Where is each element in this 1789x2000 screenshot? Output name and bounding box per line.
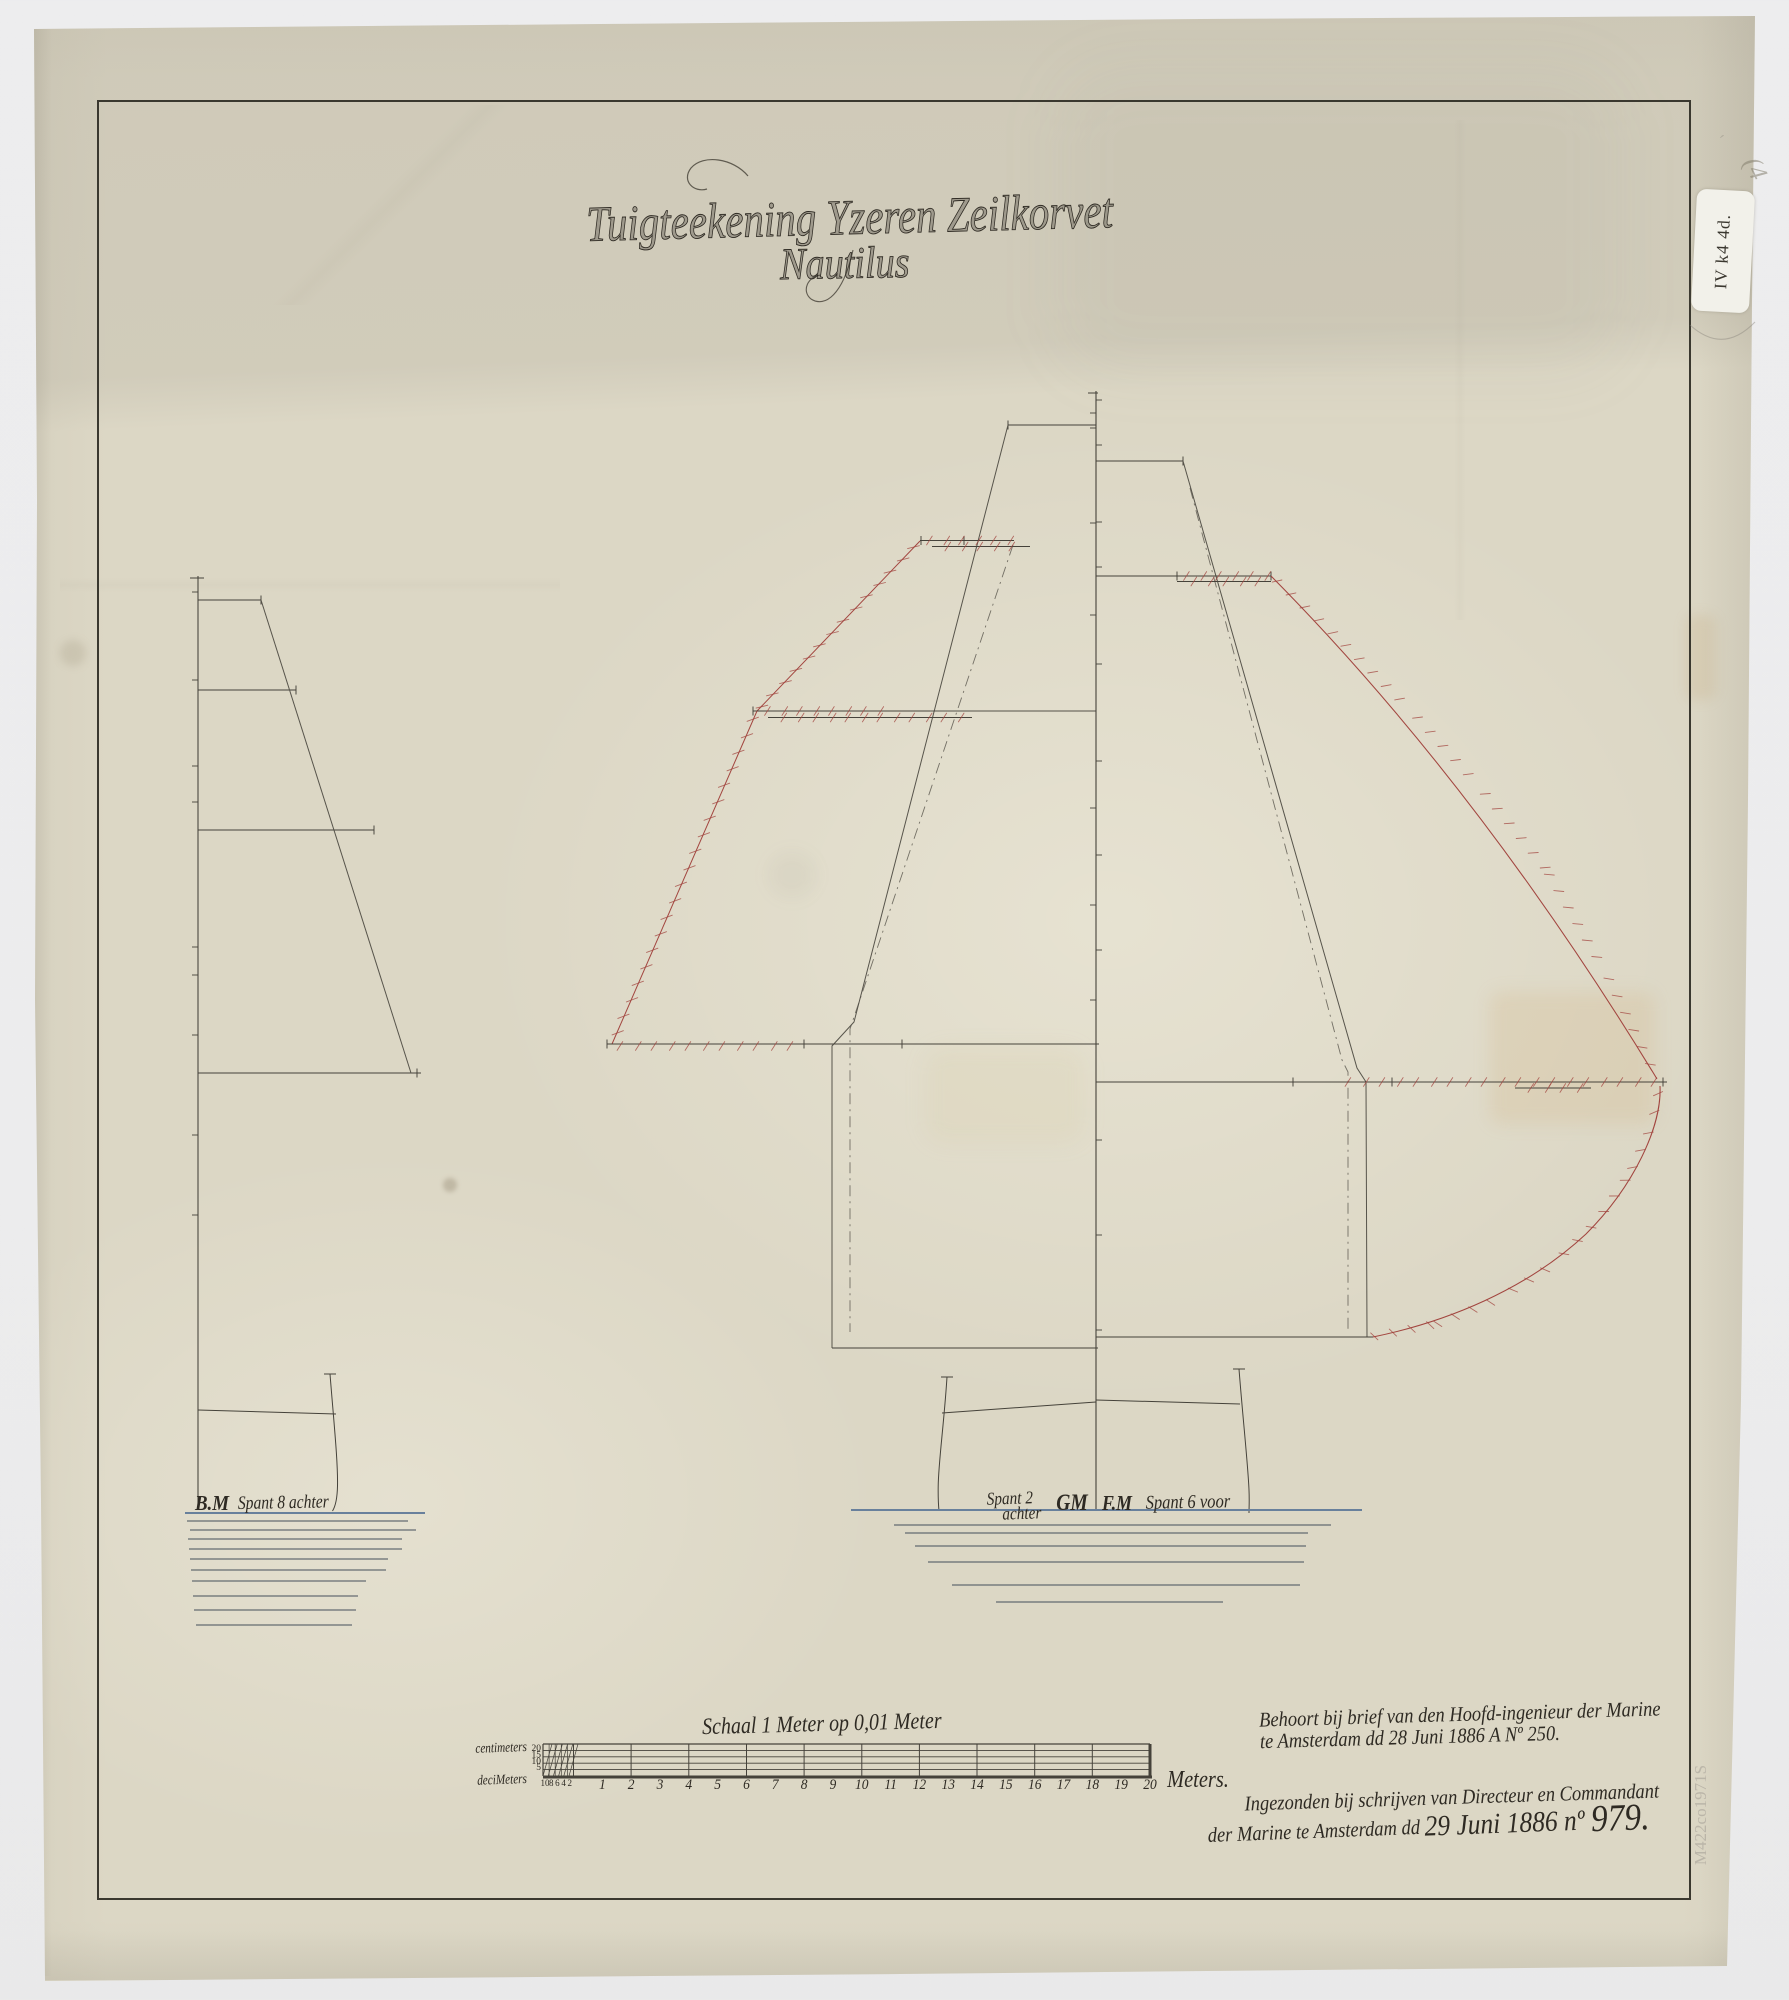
svg-text:2: 2 [568,1778,573,1788]
svg-text:14: 14 [970,1776,983,1793]
svg-text:11: 11 [884,1776,896,1793]
svg-text:10: 10 [855,1776,868,1793]
svg-text:13: 13 [941,1776,954,1793]
svg-text:Spant 8 achter: Spant 8 achter [238,1491,329,1513]
svg-text:5: 5 [536,1763,541,1773]
svg-text:M422co1971S: M422co1971S [1691,1765,1710,1865]
svg-text:18: 18 [1086,1776,1099,1793]
svg-text:deciMeters: deciMeters [477,1771,527,1788]
svg-text:8: 8 [549,1778,554,1788]
svg-text:6: 6 [743,1776,751,1793]
svg-text:achter: achter [1002,1502,1042,1524]
svg-text:(4: (4 [1738,152,1773,184]
svg-text:Meters.: Meters. [1166,1765,1229,1792]
svg-text:9: 9 [830,1776,837,1793]
svg-text:Spant 6 voor: Spant 6 voor [1145,1490,1231,1513]
svg-text:centimeters: centimeters [475,1739,527,1756]
svg-text:Schaal 1 Meter op 0,01 Meter: Schaal 1 Meter op 0,01 Meter [702,1707,943,1739]
svg-text:20: 20 [1143,1776,1156,1793]
svg-text:7: 7 [772,1776,780,1793]
svg-text:17: 17 [1057,1776,1071,1793]
svg-text:GM: GM [1056,1490,1088,1516]
svg-text:8: 8 [801,1776,808,1793]
svg-text:ˊ: ˊ [1719,132,1725,152]
svg-text:19: 19 [1114,1776,1127,1793]
svg-text:6: 6 [555,1778,560,1788]
svg-text:1: 1 [599,1776,606,1793]
svg-text:F.M: F.M [1101,1493,1132,1516]
svg-text:15: 15 [999,1776,1012,1793]
svg-text:5: 5 [714,1776,721,1793]
svg-text:4: 4 [685,1776,692,1793]
svg-text:12: 12 [913,1776,926,1793]
svg-text:4: 4 [561,1778,566,1788]
svg-text:Nautilus: Nautilus [779,238,910,290]
svg-text:3: 3 [656,1776,664,1793]
svg-text:2: 2 [628,1776,635,1793]
svg-text:16: 16 [1028,1776,1042,1793]
svg-text:B.M: B.M [194,1492,230,1515]
